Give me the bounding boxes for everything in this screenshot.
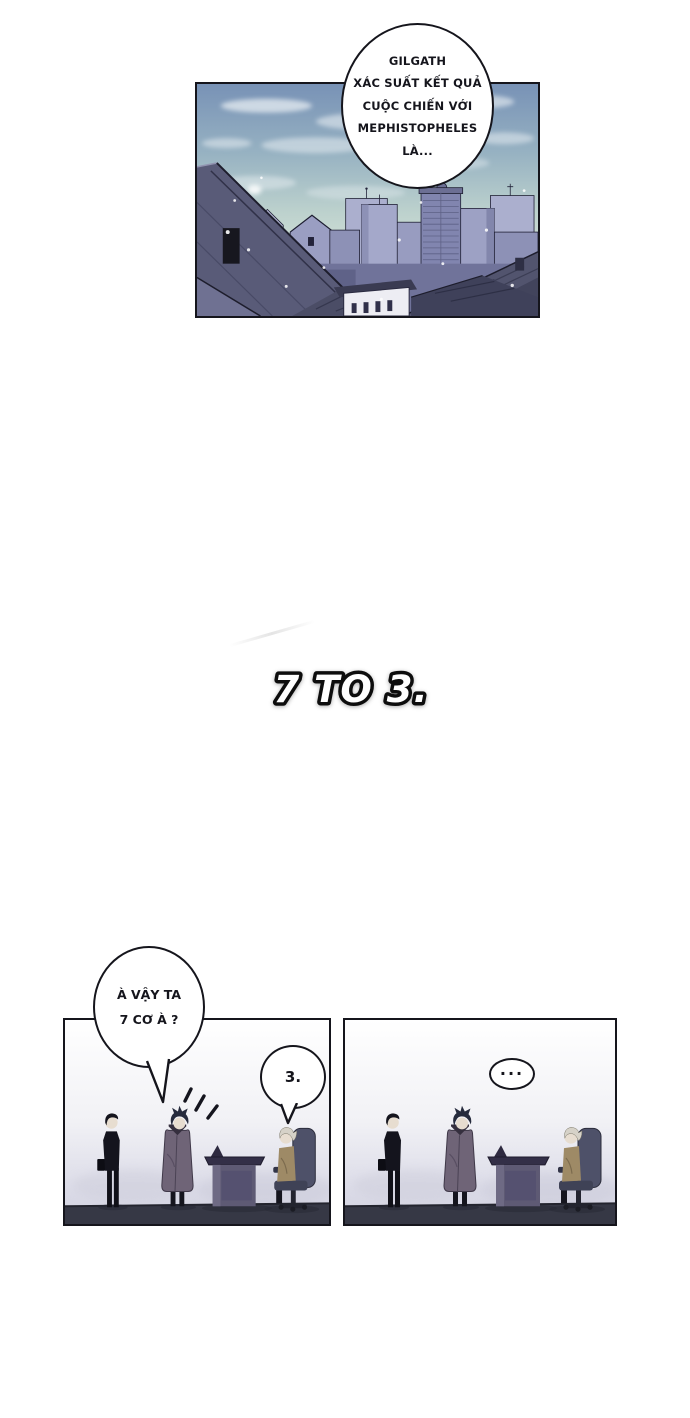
question-speech-bubble: À VẬY TA 7 CƠ À ? — [93, 946, 205, 1068]
office-panel-right — [343, 1018, 617, 1226]
bubble-line: LÀ... — [402, 140, 433, 163]
sfx-text-wrap: 7 TO 3. — [231, 648, 471, 720]
bubble-line: 3. — [285, 1068, 301, 1086]
bubble-line: ... — [500, 1060, 524, 1079]
question-bubble-tail — [146, 1058, 172, 1104]
motion-streak — [229, 620, 314, 647]
bubble-line: CUỘC CHIẾN VỚI — [363, 95, 473, 118]
reply-bubble-tail — [280, 1103, 302, 1125]
bubble-line: 7 CƠ À ? — [120, 1007, 179, 1032]
bubble-line: À VẬY TA — [117, 982, 181, 1007]
bubble-line: MEPHISTOPHELES — [358, 117, 478, 140]
bubble-line: GILGATH — [389, 50, 446, 73]
gilgath-speech-bubble: GILGATH XÁC SUẤT KẾT QUẢ CUỘC CHIẾN VỚI … — [341, 23, 494, 189]
bubble-line: XÁC SUẤT KẾT QUẢ — [353, 72, 481, 95]
emphasis-marks — [180, 1086, 222, 1128]
ellipsis-speech-bubble: ... — [489, 1058, 535, 1090]
comic-page: GILGATH XÁC SUẤT KẾT QUẢ CUỘC CHIẾN VỚI … — [0, 0, 690, 1418]
reply-speech-bubble: 3. — [260, 1045, 326, 1109]
sfx-text: 7 TO 3. — [274, 668, 429, 711]
